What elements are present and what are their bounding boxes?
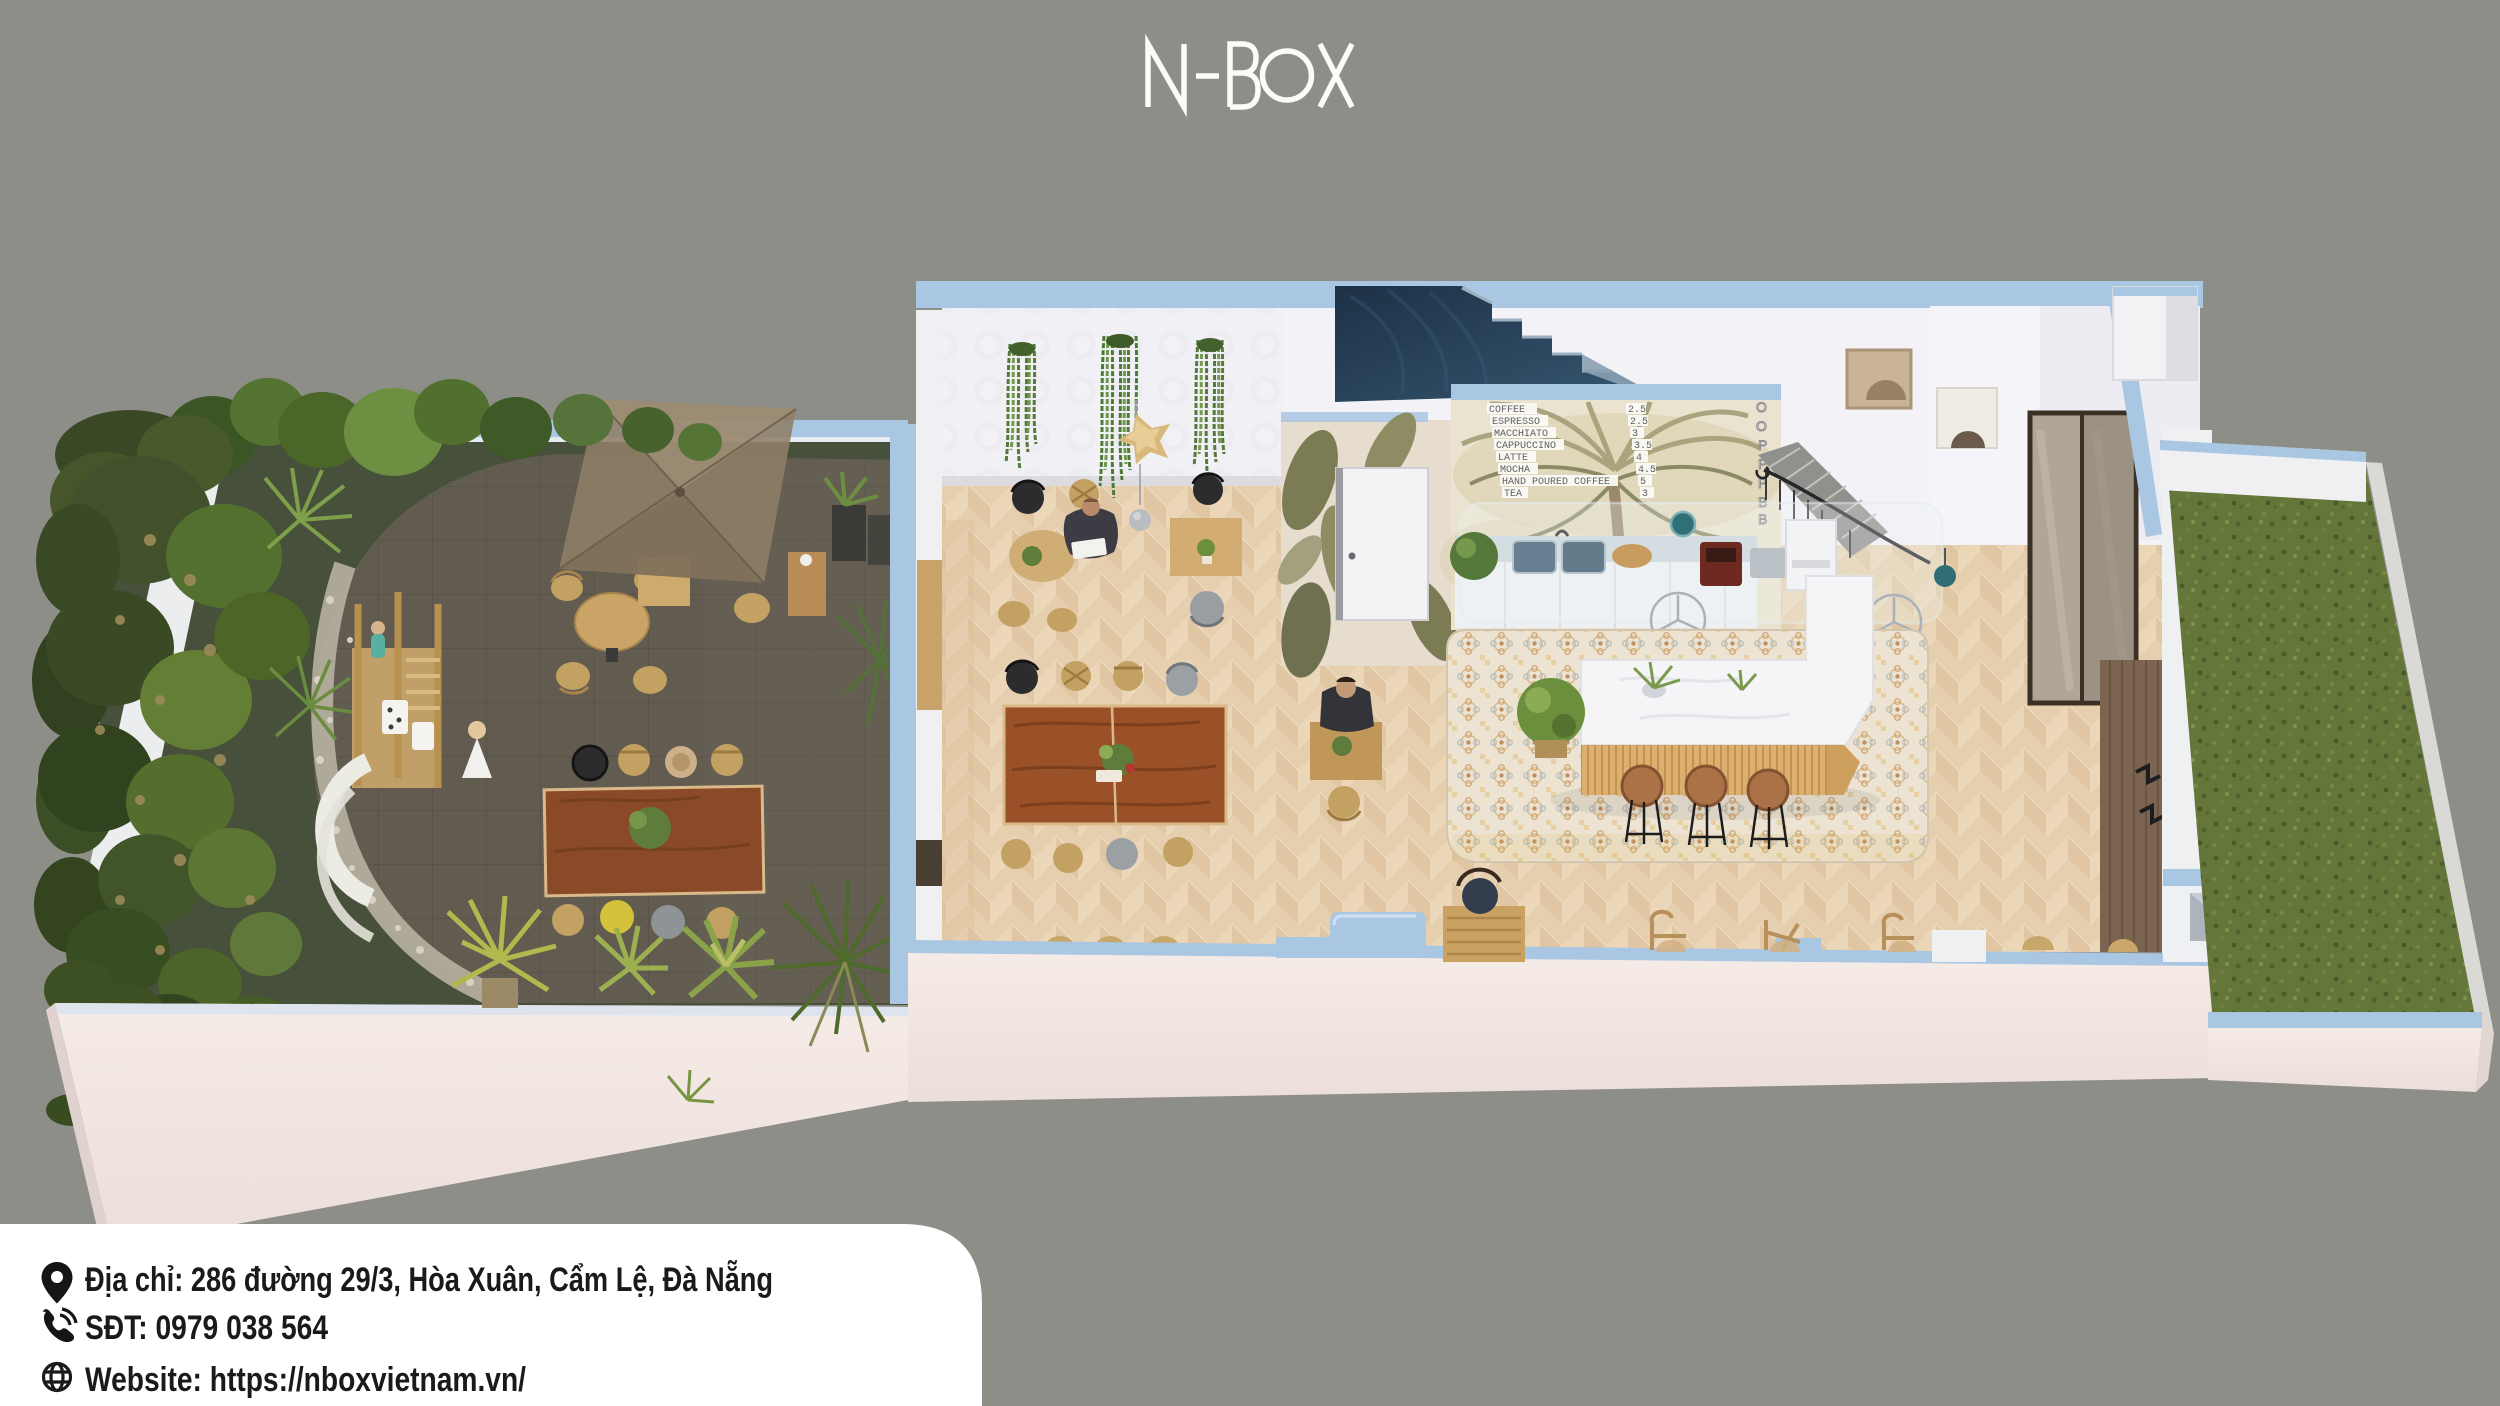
svg-text:O: O bbox=[1756, 399, 1767, 415]
svg-text:SĐT: 0979 038 564: SĐT: 0979 038 564 bbox=[85, 1309, 328, 1347]
svg-text:2.5: 2.5 bbox=[1630, 417, 1648, 428]
svg-text:4.5: 4.5 bbox=[1638, 465, 1656, 476]
svg-text:MACCHIATO: MACCHIATO bbox=[1494, 429, 1548, 440]
svg-text:3: 3 bbox=[1642, 489, 1648, 500]
svg-text:TEA: TEA bbox=[1504, 489, 1522, 500]
svg-text:P: P bbox=[1758, 437, 1767, 453]
svg-text:CAPPUCCINO: CAPPUCCINO bbox=[1496, 441, 1556, 452]
svg-text:MOCHA: MOCHA bbox=[1500, 465, 1530, 476]
svg-text:HAND POURED COFFEE: HAND POURED COFFEE bbox=[1502, 477, 1610, 488]
svg-text:3: 3 bbox=[1632, 429, 1638, 440]
svg-text:COFFEE: COFFEE bbox=[1489, 405, 1525, 416]
svg-text:Địa chỉ: 286 đường 29/3, Hòa X: Địa chỉ: 286 đường 29/3, Hòa Xuân, Cẩm L… bbox=[85, 1260, 773, 1299]
svg-text:ESPRESSO: ESPRESSO bbox=[1492, 417, 1540, 428]
svg-text:O: O bbox=[1756, 418, 1767, 434]
svg-text:4: 4 bbox=[1636, 453, 1642, 464]
svg-text:LATTE: LATTE bbox=[1498, 453, 1528, 464]
svg-text:2.5: 2.5 bbox=[1628, 405, 1646, 416]
svg-text:Website: https://nboxvietnam.v: Website: https://nboxvietnam.vn/ bbox=[85, 1361, 526, 1399]
svg-text:5: 5 bbox=[1640, 477, 1646, 488]
svg-text:3.5: 3.5 bbox=[1634, 441, 1652, 452]
